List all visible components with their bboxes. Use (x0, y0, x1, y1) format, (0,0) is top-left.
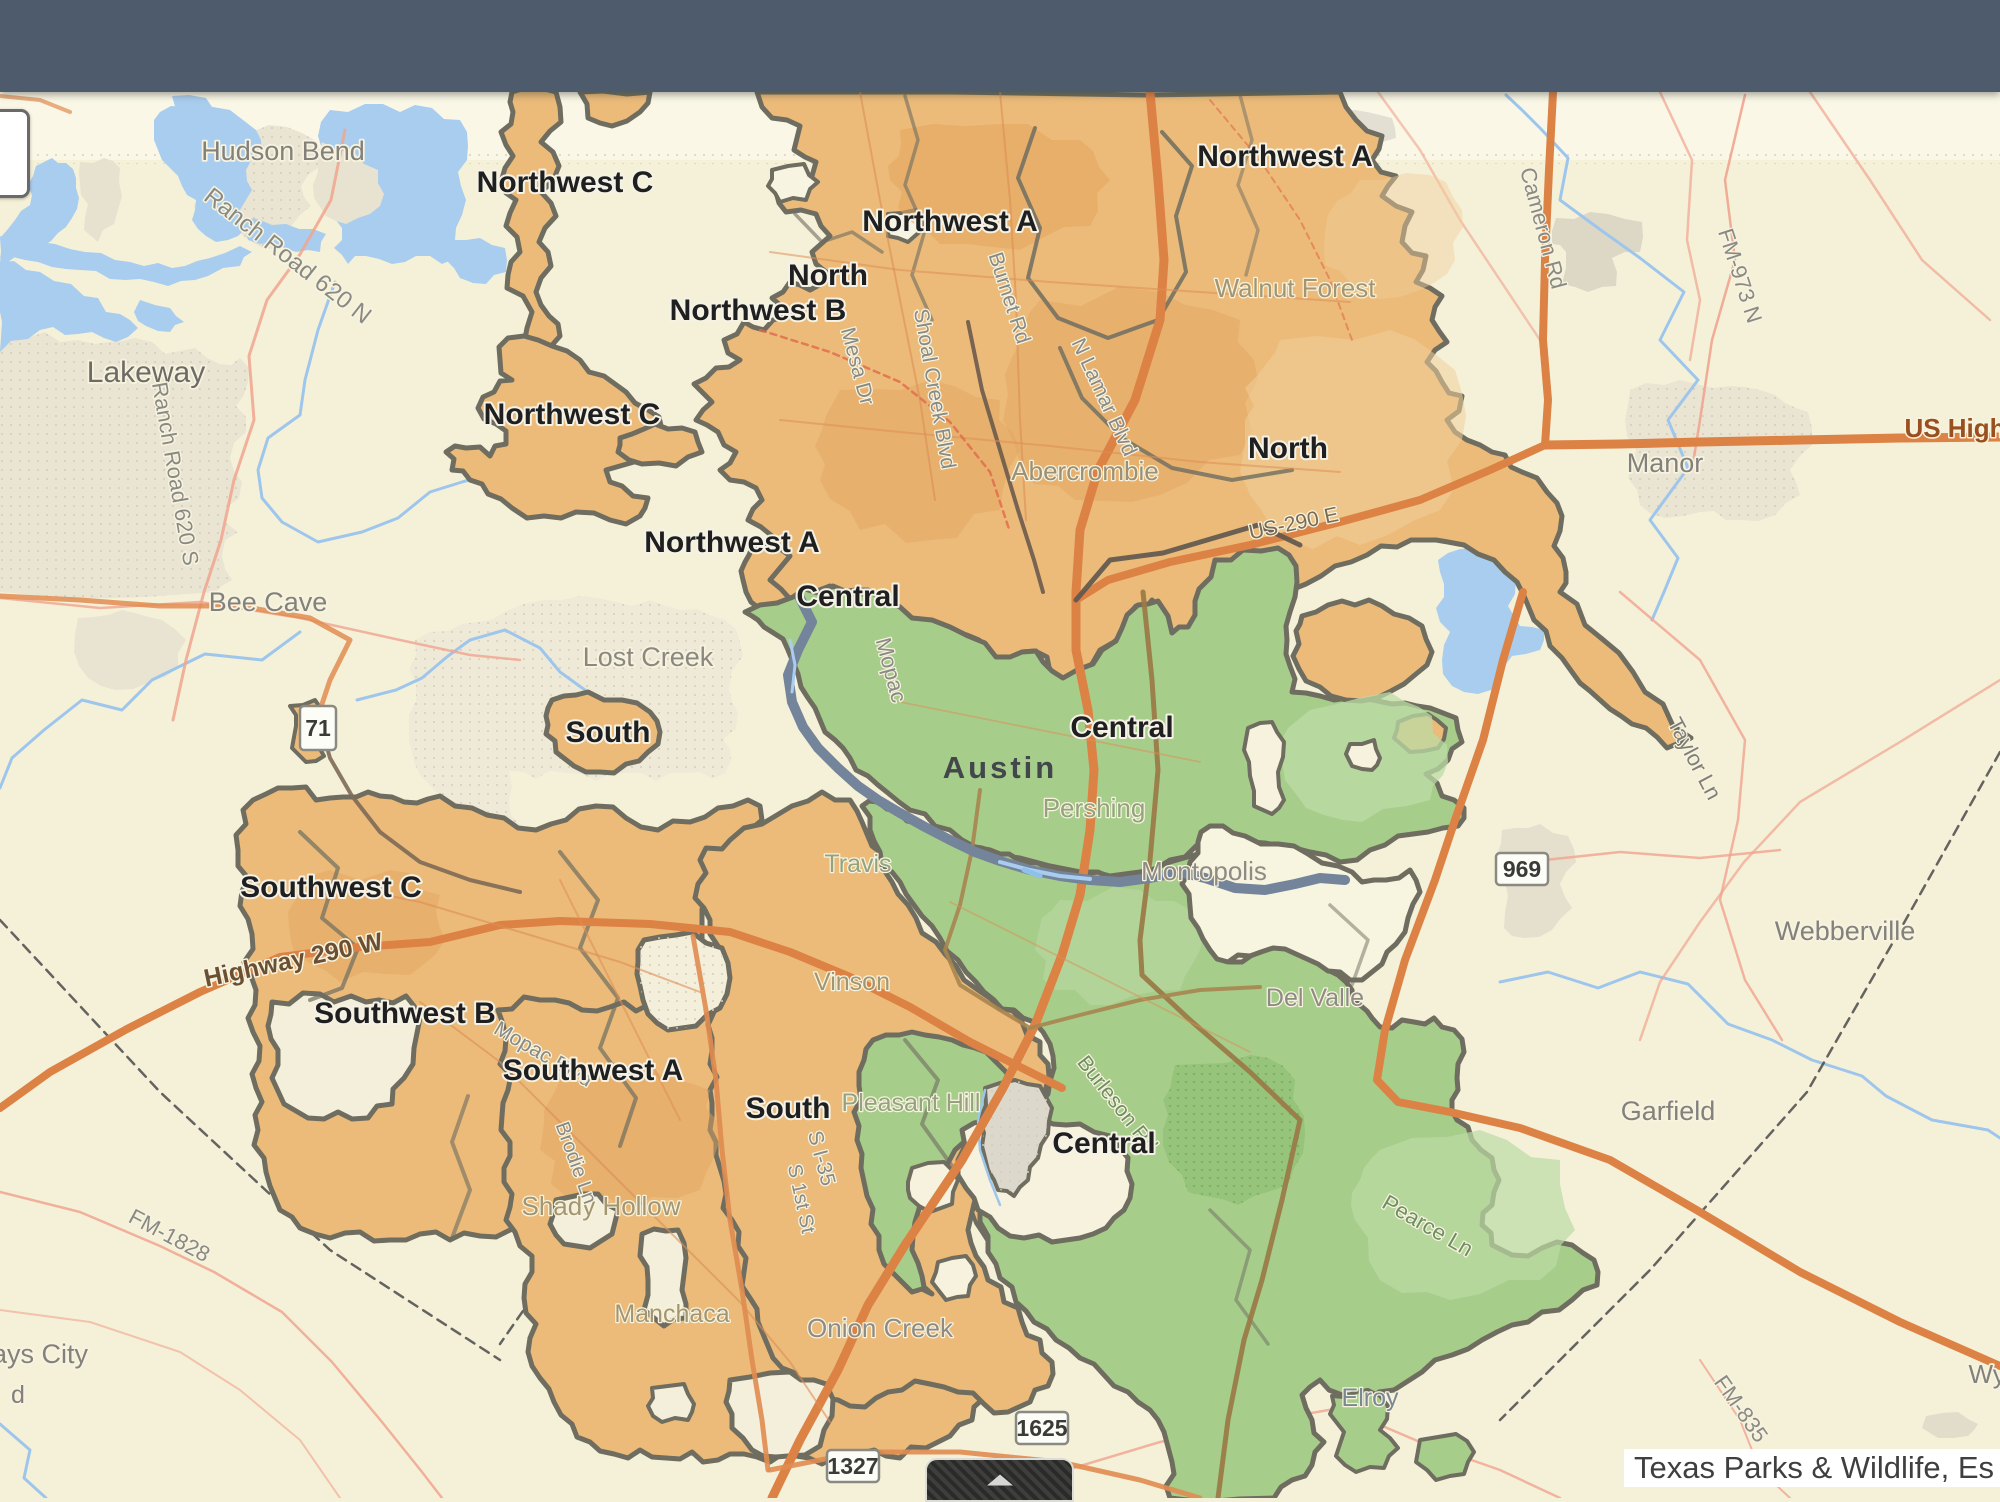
svg-text:Bee Cave: Bee Cave (209, 587, 328, 617)
svg-text:Northwest A: Northwest A (862, 205, 1038, 238)
svg-text:Southwest B: Southwest B (314, 997, 496, 1030)
svg-text:Garfield: Garfield (1621, 1096, 1716, 1126)
svg-text:Northwest A: Northwest A (644, 526, 820, 559)
svg-text:Austin: Austin (943, 750, 1057, 785)
svg-text:Central: Central (796, 580, 899, 613)
svg-text:Montopolis: Montopolis (1141, 856, 1267, 886)
svg-text:ays City: ays City (0, 1339, 89, 1369)
svg-text:Southwest C: Southwest C (240, 871, 422, 904)
svg-text:Shady Hollow: Shady Hollow (522, 1191, 681, 1221)
svg-text:Manchaca: Manchaca (614, 1300, 729, 1328)
svg-text:Webberville: Webberville (1775, 916, 1916, 946)
svg-text:Del Valle: Del Valle (1266, 984, 1364, 1012)
svg-text:Northwest C: Northwest C (477, 166, 654, 199)
svg-text:Central: Central (1070, 711, 1173, 744)
svg-text:Northwest A: Northwest A (1197, 140, 1373, 173)
svg-text:Southwest A: Southwest A (503, 1054, 684, 1087)
svg-text:Central: Central (1052, 1127, 1155, 1160)
svg-text:Onion Creek: Onion Creek (807, 1313, 954, 1343)
svg-text:Lakeway: Lakeway (87, 356, 205, 389)
svg-text:Elroy: Elroy (1342, 1384, 1399, 1412)
svg-text:Lost Creek: Lost Creek (583, 642, 714, 672)
svg-text:Abercrombie: Abercrombie (1011, 456, 1158, 486)
svg-text:North: North (1248, 432, 1328, 465)
svg-text:Wyl: Wyl (1968, 1359, 2000, 1389)
svg-text:Manor: Manor (1627, 448, 1704, 478)
svg-text:US High: US High (1904, 413, 2000, 443)
svg-text:Walnut Forest: Walnut Forest (1215, 273, 1377, 303)
svg-text:Northwest B: Northwest B (670, 294, 847, 327)
svg-text:Pleasant Hill: Pleasant Hill (842, 1089, 981, 1117)
svg-text:Hudson Bend: Hudson Bend (201, 136, 365, 166)
svg-text:d: d (11, 1381, 25, 1409)
svg-text:1625: 1625 (1016, 1415, 1067, 1441)
svg-text:North: North (788, 259, 868, 292)
svg-text:South: South (566, 716, 651, 749)
svg-text:71: 71 (305, 715, 331, 741)
svg-text:Northwest C: Northwest C (484, 398, 661, 431)
svg-text:Pershing: Pershing (1043, 793, 1146, 823)
svg-text:Vinson: Vinson (814, 968, 890, 996)
svg-text:969: 969 (1503, 856, 1541, 882)
svg-text:South: South (746, 1092, 831, 1125)
svg-text:Travis: Travis (824, 850, 891, 878)
svg-text:1327: 1327 (827, 1453, 878, 1479)
